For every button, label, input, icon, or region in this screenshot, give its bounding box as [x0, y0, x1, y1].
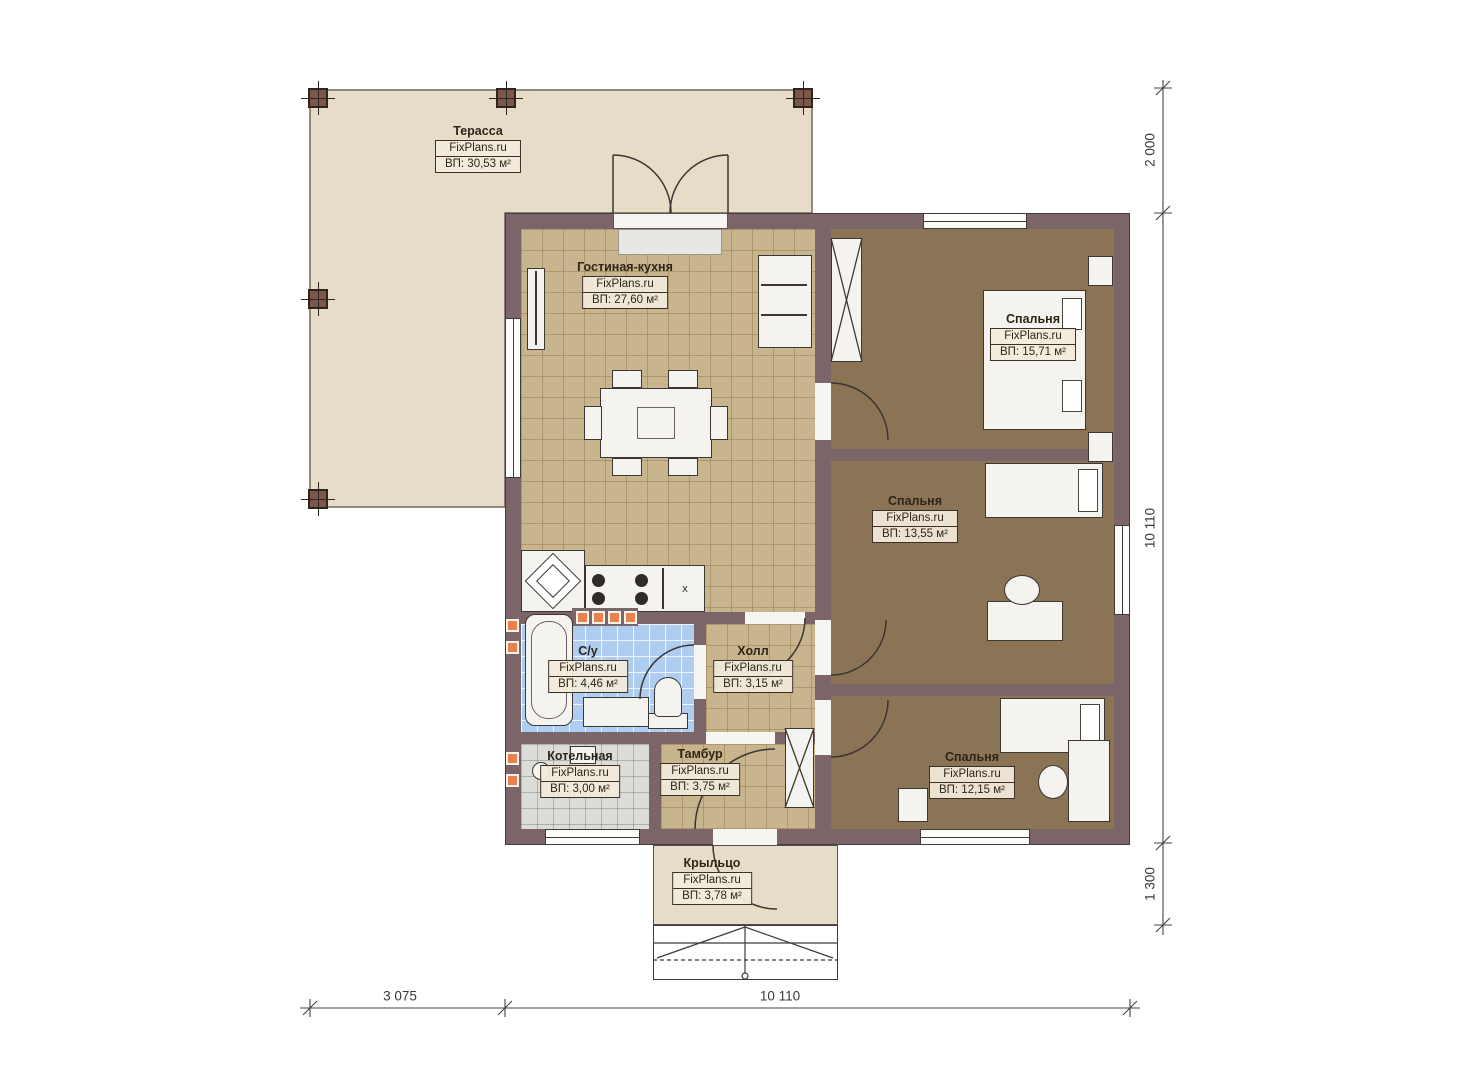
dimension-bottom-left: 3 075 — [383, 989, 417, 1004]
radiator — [506, 752, 519, 765]
room-label-porch: Крыльцо FixPlans.ru ВП: 3,78 м² — [672, 856, 752, 905]
office-chair — [1004, 575, 1040, 605]
terrace-post — [496, 88, 516, 108]
stove-burner — [592, 592, 605, 605]
appliance-mark: x — [682, 583, 688, 595]
chair — [584, 406, 602, 440]
floor-plan: x — [0, 0, 1473, 1080]
brand-watermark: FixPlans.ru — [583, 277, 667, 293]
watermark-box: FixPlans.ru ВП: 3,15 м² — [713, 660, 793, 693]
door-arc-terrace-left — [613, 155, 671, 213]
closet — [898, 788, 928, 822]
chair — [710, 406, 728, 440]
room-label-vestibule: Тамбур FixPlans.ru ВП: 3,75 м² — [660, 747, 740, 796]
room-label-bedroom-1: Спальня FixPlans.ru ВП: 15,71 м² — [990, 312, 1076, 361]
radiator — [624, 611, 637, 624]
room-name: Спальня — [872, 494, 958, 508]
room-area: ВП: 30,53 м² — [436, 157, 520, 172]
window-living-left — [505, 318, 521, 478]
terrace-post — [308, 289, 328, 309]
brand-watermark: FixPlans.ru — [873, 511, 957, 527]
chair — [612, 370, 642, 388]
room-label-living-kitchen: Гостиная-кухня FixPlans.ru ВП: 27,60 м² — [577, 260, 673, 309]
brand-watermark: FixPlans.ru — [541, 766, 619, 782]
room-area: ВП: 3,75 м² — [661, 780, 739, 795]
room-label-hall: Холл FixPlans.ru ВП: 3,15 м² — [713, 644, 793, 693]
terrace-post — [308, 88, 328, 108]
wardrobe — [785, 728, 814, 808]
porch-steps — [653, 925, 838, 980]
hall-vestibule-opening — [706, 732, 775, 744]
room-area: ВП: 12,15 м² — [930, 783, 1014, 798]
room-name: Крыльцо — [672, 856, 752, 870]
terrace-post — [793, 88, 813, 108]
room-label-bedroom-3: Спальня FixPlans.ru ВП: 12,15 м² — [929, 750, 1015, 799]
dimension-tick — [1156, 206, 1170, 220]
nightstand — [1088, 432, 1113, 462]
desk — [1068, 740, 1110, 822]
desk — [987, 601, 1063, 641]
brand-watermark: FixPlans.ru — [673, 873, 751, 889]
room-name: Тамбур — [660, 747, 740, 761]
bedroom1-door-opening — [815, 383, 831, 440]
brand-watermark: FixPlans.ru — [436, 141, 520, 157]
room-area: ВП: 3,00 м² — [541, 782, 619, 797]
door-arc-terrace-right — [670, 155, 728, 213]
room-name: Холл — [713, 644, 793, 658]
watermark-box: FixPlans.ru ВП: 13,55 м² — [872, 510, 958, 543]
radiator — [608, 611, 621, 624]
window-bedroom1-top — [923, 213, 1027, 229]
chair — [612, 458, 642, 476]
dimension-right-middle: 10 110 — [1143, 508, 1158, 548]
room-name: Гостиная-кухня — [577, 260, 673, 274]
dimension-bottom-right: 10 110 — [760, 989, 800, 1004]
window-boiler-bottom — [545, 829, 640, 845]
room-area: ВП: 13,55 м² — [873, 527, 957, 542]
radiator — [506, 641, 519, 654]
stove-burner — [635, 574, 648, 587]
brand-watermark: FixPlans.ru — [930, 767, 1014, 783]
dimension-tick — [1156, 836, 1170, 850]
room-name: Котельная — [540, 749, 620, 763]
dimension-right-top: 2 000 — [1143, 133, 1158, 167]
stove-burner — [592, 574, 605, 587]
room-name: С/у — [548, 644, 628, 658]
watermark-box: FixPlans.ru ВП: 3,00 м² — [540, 765, 620, 798]
room-name: Терасса — [435, 124, 521, 138]
radiator-panel — [527, 268, 545, 350]
hall-door-opening — [745, 612, 805, 624]
window-bedroom3-bottom — [920, 829, 1030, 845]
dimension-right-bottom: 1 300 — [1143, 867, 1158, 901]
room-label-boiler: Котельная FixPlans.ru ВП: 3,00 м² — [540, 749, 620, 798]
door-mat — [618, 229, 722, 255]
brand-watermark: FixPlans.ru — [549, 661, 627, 677]
watermark-box: FixPlans.ru ВП: 12,15 м² — [929, 766, 1015, 799]
stove-burner — [635, 592, 648, 605]
dimension-tick — [1156, 81, 1170, 95]
room-label-bathroom: С/у FixPlans.ru ВП: 4,46 м² — [548, 644, 628, 693]
pillow — [1062, 380, 1082, 412]
brand-watermark: FixPlans.ru — [991, 329, 1075, 345]
dimension-tick — [498, 1001, 512, 1015]
watermark-box: FixPlans.ru ВП: 4,46 м² — [548, 660, 628, 693]
room-name: Спальня — [929, 750, 1015, 764]
radiator — [576, 611, 589, 624]
nightstand — [1088, 256, 1113, 286]
chair — [668, 370, 698, 388]
media-cabinet — [758, 255, 812, 348]
room-area: ВП: 3,15 м² — [714, 677, 792, 692]
terrace-post — [308, 489, 328, 509]
wall-bedroom1-bedroom2 — [831, 449, 1114, 461]
dimension-tick — [303, 1001, 317, 1015]
room-label-terrace: Терасса FixPlans.ru ВП: 30,53 м² — [435, 124, 521, 173]
dimension-tick — [1123, 1001, 1137, 1015]
front-door-opening — [713, 829, 777, 845]
radiator — [506, 619, 519, 632]
office-chair — [1038, 765, 1068, 799]
terrace-door-threshold — [613, 213, 728, 229]
pillow — [1078, 469, 1098, 512]
dimension-tick — [1156, 918, 1170, 932]
room-area: ВП: 27,60 м² — [583, 293, 667, 308]
watermark-box: FixPlans.ru ВП: 27,60 м² — [582, 276, 668, 309]
bathroom-vanity — [583, 697, 649, 727]
watermark-box: FixPlans.ru ВП: 30,53 м² — [435, 140, 521, 173]
room-label-bedroom-2: Спальня FixPlans.ru ВП: 13,55 м² — [872, 494, 958, 543]
watermark-box: FixPlans.ru ВП: 3,78 м² — [672, 872, 752, 905]
bedroom3-door-opening — [815, 700, 831, 755]
toilet-bowl — [654, 677, 682, 717]
room-area: ВП: 4,46 м² — [549, 677, 627, 692]
bathroom-door-opening — [694, 645, 706, 699]
room-name: Спальня — [990, 312, 1076, 326]
watermark-box: FixPlans.ru ВП: 3,75 м² — [660, 763, 740, 796]
radiator — [592, 611, 605, 624]
room-area: ВП: 15,71 м² — [991, 345, 1075, 360]
wall-bedroom2-bedroom3 — [831, 684, 1114, 696]
dining-table — [600, 388, 712, 458]
watermark-box: FixPlans.ru ВП: 15,71 м² — [990, 328, 1076, 361]
brand-watermark: FixPlans.ru — [661, 764, 739, 780]
window-bedroom2-right — [1114, 525, 1130, 615]
chair — [668, 458, 698, 476]
room-area: ВП: 3,78 м² — [673, 889, 751, 904]
bedroom2-door-opening — [815, 620, 831, 675]
radiator — [506, 774, 519, 787]
brand-watermark: FixPlans.ru — [714, 661, 792, 677]
wardrobe — [831, 238, 862, 362]
